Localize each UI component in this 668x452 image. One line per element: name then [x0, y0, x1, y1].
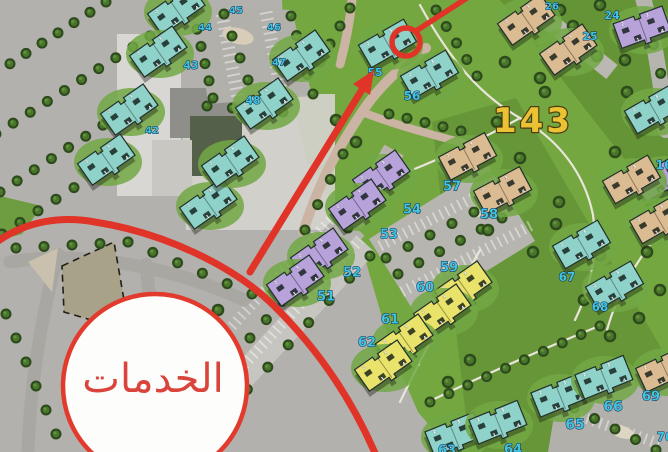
plot-label-62: 62	[358, 336, 376, 351]
plot-label-24: 24	[604, 9, 620, 22]
plot-label-65: 65	[565, 417, 584, 433]
speech-bubble: الخدمات	[63, 294, 247, 452]
plot-label-54: 54	[403, 203, 421, 218]
plot-label-67: 67	[559, 270, 576, 284]
plot-label-26: 26	[545, 2, 559, 13]
plot-label-66: 66	[603, 399, 622, 415]
plot-label-68: 68	[592, 300, 609, 314]
plot-label-64: 64	[504, 443, 522, 452]
plot-label-56: 56	[404, 89, 421, 103]
plot-label-70: 70	[657, 430, 668, 444]
plot-label-69: 69	[642, 390, 660, 405]
speech-bubble-text: الخدمات	[82, 356, 223, 402]
plot-label-59: 59	[440, 261, 458, 276]
plot-label-43: 43	[183, 59, 198, 72]
plot-label-60: 60	[416, 281, 434, 296]
plot-label-63: 63	[438, 444, 456, 452]
plot-label-57: 57	[443, 180, 461, 195]
plot-label-47: 47	[272, 58, 286, 69]
screenshot-root: 2134213421342134213421342134213421342134…	[0, 0, 668, 452]
plot-label-46: 46	[267, 23, 281, 34]
plot-label-61: 61	[381, 313, 399, 328]
plot-label-58: 58	[480, 208, 498, 223]
site-map-image: 2134213421342134213421342134213421342134…	[0, 0, 668, 452]
plot-label-53: 53	[380, 228, 398, 243]
plot-label-45: 45	[229, 6, 243, 17]
plot-label-25: 25	[582, 30, 597, 43]
plot-label-42: 42	[145, 126, 159, 137]
plot-label-51: 51	[317, 290, 335, 305]
plot-label-52: 52	[343, 266, 361, 281]
plot-label-44: 44	[198, 23, 212, 34]
plot-label-16: 16	[656, 158, 668, 172]
area-number-label: 143	[493, 101, 573, 141]
plot-label-48: 48	[245, 94, 260, 107]
